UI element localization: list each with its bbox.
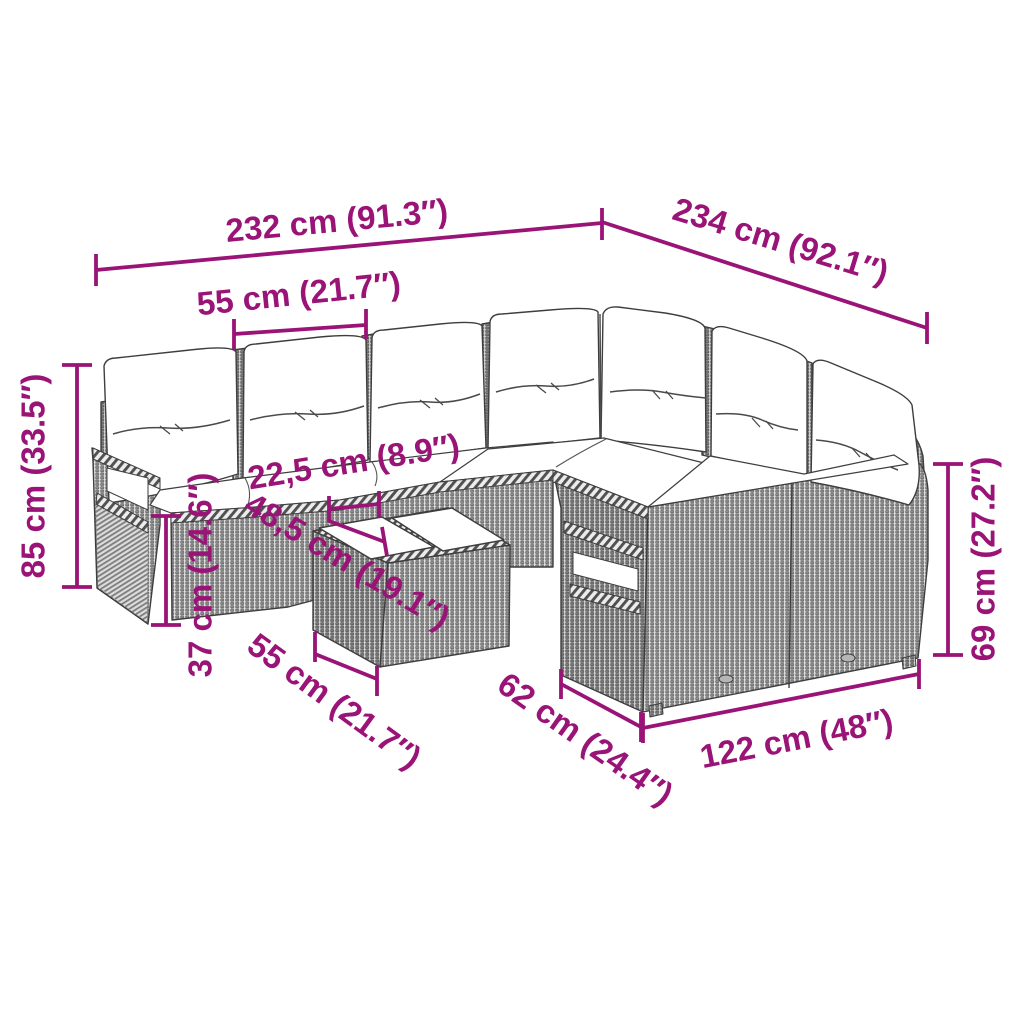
svg-text:85 cm (33.5″): 85 cm (33.5″) xyxy=(15,374,52,579)
svg-text:69 cm (27.2″): 69 cm (27.2″) xyxy=(965,457,1002,662)
svg-text:37 cm (14.6″): 37 cm (14.6″) xyxy=(182,473,219,678)
